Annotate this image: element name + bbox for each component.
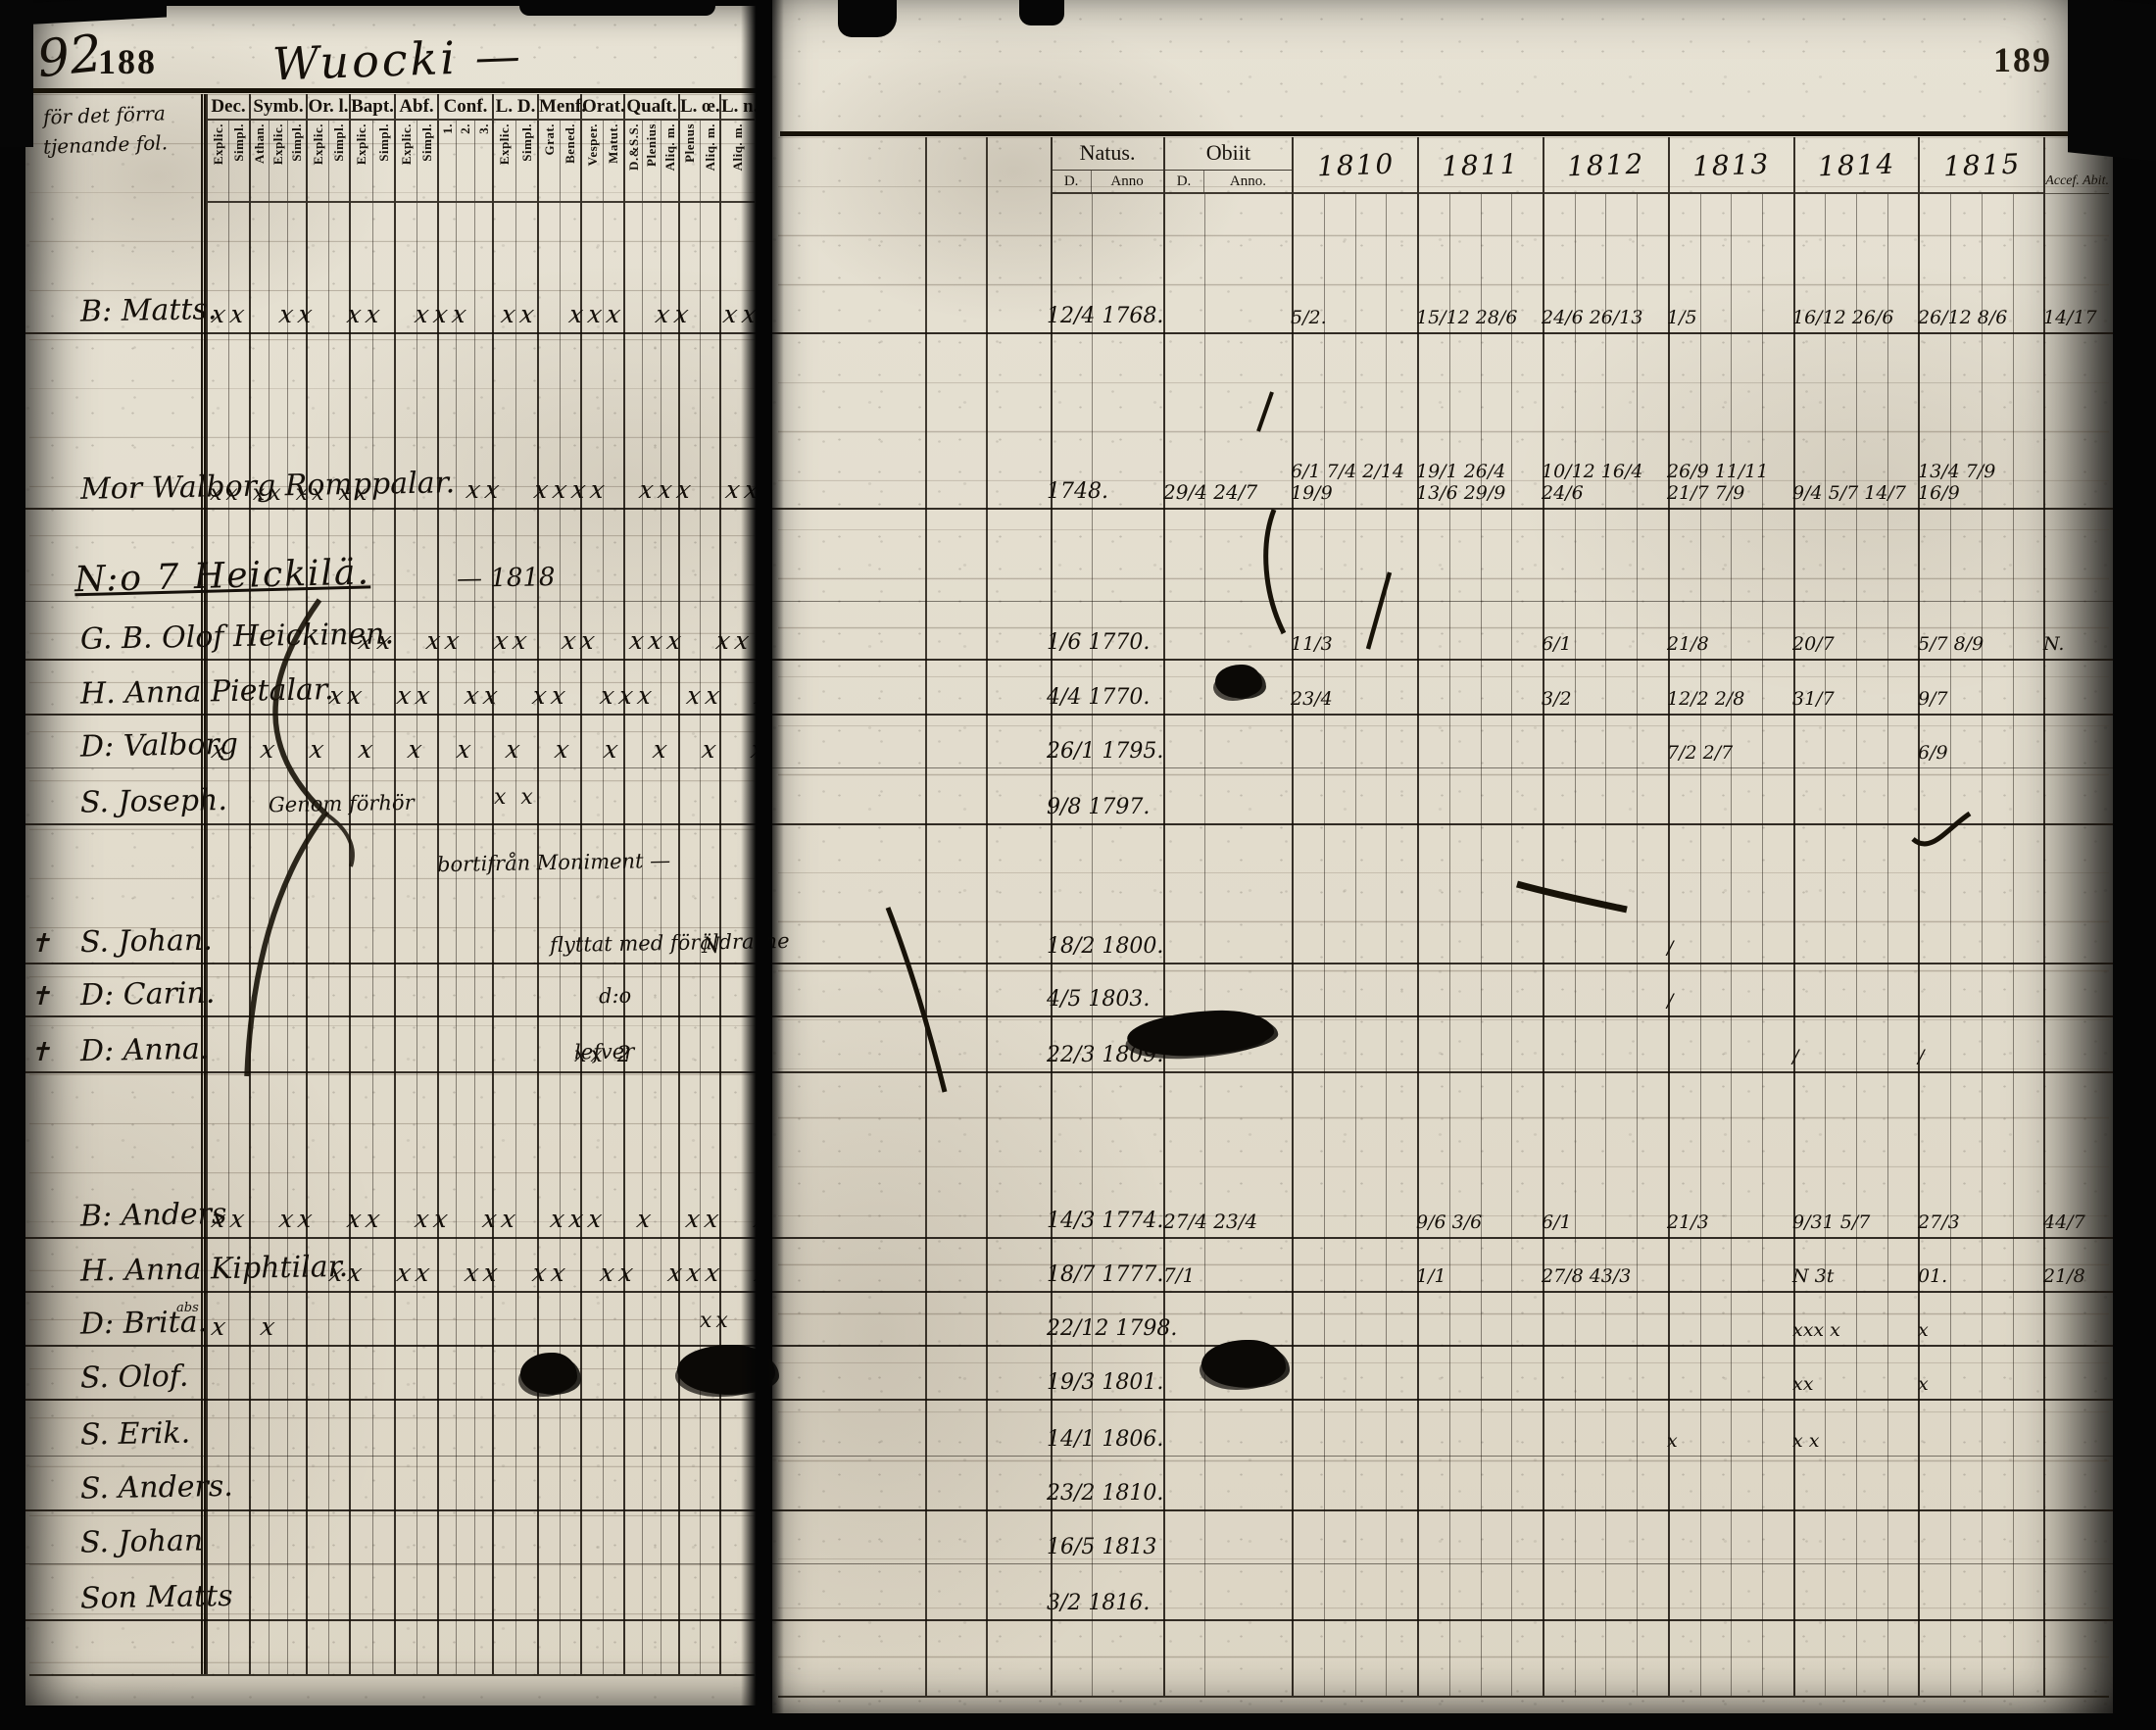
left-rows-layer: B: Matts.xx xx xx xxx xx xxx xx xx xx xx… xyxy=(25,6,759,1705)
year-marks-1810: 23/4 xyxy=(1287,689,1412,710)
natus-value: 4/5 1803. xyxy=(1045,987,1157,1012)
person-row-left: B: Matts.xx xx xx xxx xx xxx xx xx xx xx… xyxy=(25,277,759,334)
person-row-left: S. Anders. xyxy=(25,1460,759,1511)
year-marks-1812: 6/1 xyxy=(1538,1212,1663,1233)
person-row-left: G. B. Olof Heickinen.xx xx xx xx xxx xx … xyxy=(25,606,759,661)
person-row-right: 16/5 1813 xyxy=(772,1515,2113,1564)
obiit-value: 27/4 23/4 xyxy=(1157,1210,1287,1233)
person-row-left: H. Anna Kiphtilar.xx xx xx xx xx xxx xx … xyxy=(25,1242,759,1293)
year-marks-1815: 13/4 7/9 16/9 xyxy=(1914,462,2039,504)
year-marks-1812: 24/6 26/13 xyxy=(1538,308,1663,328)
person-row-right: 9/8 1797. xyxy=(772,772,2113,825)
extra-mark: xx xyxy=(700,1309,732,1333)
year-marks-1815: 6/9 xyxy=(1914,743,2039,764)
cross-mark: ✝ xyxy=(25,929,55,959)
year-marks-1815: 01. xyxy=(1914,1266,2039,1287)
person-row-right: 14/3 1774.27/4 23/49/6 3/66/121/39/31 5/… xyxy=(772,1184,2113,1239)
year-marks-1813: / xyxy=(1663,938,1788,959)
person-row-right: 18/2 1800./ xyxy=(772,910,2113,964)
natus-value: 26/1 1795. xyxy=(1045,739,1157,764)
year-marks-1815: 5/7 8/9 xyxy=(1914,634,2039,655)
communion-marks: x x x x x x x x x x x x x xyxy=(200,735,761,764)
year-marks-1814: 9/4 5/7 14/7 xyxy=(1788,483,1914,504)
section-row-left: N:o 7 Heickilä.— 1818 xyxy=(25,545,759,602)
communion-marks: xx xx xx xx xx xxx x xx xx xyxy=(200,1205,761,1233)
person-name: B: Anders xyxy=(25,1197,203,1234)
year-marks-1813: x xyxy=(1663,1431,1788,1452)
year-marks-1815: x xyxy=(1914,1320,2039,1341)
scan-edge-artifact xyxy=(0,0,33,147)
person-row-left: ✝D: Carin.d:o xyxy=(25,968,759,1017)
cross-mark: ✝ xyxy=(25,1038,55,1067)
obiit-value: 29/4 24/7 xyxy=(1157,480,1287,504)
year-marks-1814: 20/7 xyxy=(1788,634,1914,655)
person-row-right: 1748.29/4 24/76/1 7/4 2/14 19/919/1 26/4… xyxy=(772,439,2113,510)
year-marks-1815: 26/12 8/6 xyxy=(1914,308,2039,328)
accessit-value: 44/7 xyxy=(2039,1211,2113,1233)
year-marks-1814: xx xyxy=(1788,1374,1914,1395)
accessit-value: 14/17 xyxy=(2039,307,2113,328)
person-row-left: D: Brita.x xabsxx xyxy=(25,1296,759,1347)
natus-value: 19/3 1801. xyxy=(1045,1370,1157,1395)
section-heading: N:o 7 Heickilä. xyxy=(25,552,371,601)
person-name: Son Matts xyxy=(25,1579,203,1616)
person-row-right: 22/12 1798.xxx xx xyxy=(772,1296,2113,1347)
year-marks-1813: 21/3 xyxy=(1663,1212,1788,1233)
person-row-left: S. Johan xyxy=(25,1515,759,1564)
scan-edge-artifact xyxy=(519,0,715,16)
year-marks-1812: 27/8 43/3 xyxy=(1538,1266,1663,1287)
natus-value: 4/4 1770. xyxy=(1045,685,1157,710)
person-row-right: 23/2 1810. xyxy=(772,1460,2113,1511)
accessit-value: N. xyxy=(2039,633,2113,655)
person-row-right: 3/2 1816. xyxy=(772,1568,2113,1621)
person-row-right: 22/3 1809.// xyxy=(772,1020,2113,1073)
person-name: G. B. Olof Heickinen. xyxy=(25,618,350,658)
communion-marks: xx xx xx xx xx xxx xx xx xyxy=(318,1259,761,1287)
person-name: H. Anna Kiphtilar. xyxy=(25,1250,320,1289)
year-marks-1813: 1/5 xyxy=(1663,308,1788,328)
person-name: D: Carin. xyxy=(55,975,232,1013)
person-row-left: S. Olof. xyxy=(25,1350,759,1401)
accessit-value: 21/8 xyxy=(2039,1265,2113,1287)
natus-value: 14/1 1806. xyxy=(1045,1427,1157,1452)
year-marks-1814: / xyxy=(1788,1047,1914,1067)
year-marks-1814: 31/7 xyxy=(1788,689,1914,710)
year-marks-1814: 16/12 26/6 xyxy=(1788,308,1914,328)
left-page: 92 188 Wuocki — för det förra tjenande f… xyxy=(25,6,759,1705)
extra-mark: x x xyxy=(494,785,537,810)
person-row-left: H. Anna Pietalar.xx xx xx xx xxx xx xx xyxy=(25,665,759,716)
year-marks-1815: 27/3 xyxy=(1914,1212,2039,1233)
person-row-left: D: Valborgx x x x x x x x x x x x x xyxy=(25,719,759,768)
person-name: S. Johan. xyxy=(55,922,232,960)
natus-value: 22/12 1798. xyxy=(1045,1316,1157,1341)
margin-annotation: bortifrån Moniment — xyxy=(437,849,671,876)
year-marks-1810: 5/2. xyxy=(1287,308,1412,328)
natus-value: 3/2 1816. xyxy=(1045,1591,1157,1615)
natus-value: 18/2 1800. xyxy=(1045,934,1157,959)
cross-mark: ✝ xyxy=(25,982,55,1012)
scanned-parish-register: 92 188 Wuocki — för det förra tjenande f… xyxy=(0,0,2156,1730)
person-row-right: 14/1 1806.xx x xyxy=(772,1404,2113,1457)
year-marks-1815: x xyxy=(1914,1374,2039,1395)
person-name: H. Anna Pietalar. xyxy=(25,672,320,712)
year-marks-1810: 6/1 7/4 2/14 19/9 xyxy=(1287,462,1412,504)
natus-value: 9/8 1797. xyxy=(1045,795,1157,819)
natus-value: 14/3 1774. xyxy=(1045,1209,1157,1233)
year-marks-1815: 9/7 xyxy=(1914,689,2039,710)
communion-marks: x x xyxy=(200,1312,761,1341)
natus-value: 23/2 1810. xyxy=(1045,1481,1157,1506)
year-marks-1812: 3/2 xyxy=(1538,689,1663,710)
communion-marks: xx xxxx xxx xx xx xyxy=(455,475,761,504)
extra-mark: abs xyxy=(176,1301,199,1315)
note-row-left: bortifrån Moniment — xyxy=(25,841,759,882)
person-row-right: 12/4 1768.5/2.15/12 28/624/6 26/131/516/… xyxy=(772,277,2113,334)
person-row-left: ✝S. Johan.flyttat med föräldrarneN xyxy=(25,910,759,964)
year-marks-1812: 6/1 xyxy=(1538,634,1663,655)
person-name: S. Johan xyxy=(25,1523,203,1560)
scan-edge-artifact xyxy=(2068,0,2156,162)
year-marks-1813: 12/2 2/8 xyxy=(1663,689,1788,710)
row-annotation: Genom förhör xyxy=(269,791,415,817)
row-annotation: d:o xyxy=(599,984,632,1009)
section-annotation: — 1818 xyxy=(457,563,556,594)
year-marks-1811: 9/6 3/6 xyxy=(1412,1212,1538,1233)
year-marks-1813: 7/2 2/7 xyxy=(1663,743,1788,764)
person-name: S. Joseph. xyxy=(25,783,203,820)
year-marks-1815: / xyxy=(1914,1047,2039,1067)
year-marks-1811: 1/1 xyxy=(1412,1266,1538,1287)
extra-mark: xx xx xx xx xyxy=(210,481,370,506)
communion-marks: xx xx xx xxx xx xxx xx xx xx xxx xx xx xyxy=(200,300,761,328)
natus-value: 18/7 1777. xyxy=(1045,1262,1157,1287)
person-row-right: 19/3 1801.xxx xyxy=(772,1350,2113,1401)
person-name: S. Anders. xyxy=(25,1469,203,1507)
year-marks-1811: 15/12 28/6 xyxy=(1412,308,1538,328)
person-name: D: Valborg xyxy=(25,727,203,765)
person-name: S. Olof. xyxy=(25,1359,203,1396)
obiit-value: 7/1 xyxy=(1157,1263,1287,1287)
natus-value: 1748. xyxy=(1045,479,1157,504)
year-marks-1814: N 3t xyxy=(1788,1266,1914,1287)
year-marks-1814: x x xyxy=(1788,1431,1914,1452)
year-marks-1814: xxx x xyxy=(1788,1320,1914,1341)
year-marks-1813: 21/8 xyxy=(1663,634,1788,655)
year-marks-1811: 19/1 26/4 13/6 29/9 xyxy=(1412,462,1538,504)
year-marks-1814: 9/31 5/7 xyxy=(1788,1212,1914,1233)
communion-marks: xx xx xx xx xxx xx xx xyxy=(318,681,761,710)
book-spine-shadow xyxy=(741,0,784,1730)
person-row-right: 26/1 1795.7/2 2/76/9 xyxy=(772,719,2113,768)
ink-blot xyxy=(1215,665,1262,698)
person-row-left: Mor Walborg Romppalar.xx xxxx xxx xx xxx… xyxy=(25,439,759,510)
person-row-left: B: Andersxx xx xx xx xx xxx x xx xx xyxy=(25,1184,759,1239)
natus-value: 16/5 1813 xyxy=(1045,1535,1157,1559)
person-row-right: 4/4 1770.23/43/212/2 2/831/79/7 xyxy=(772,665,2113,716)
communion-marks: xx xx xx xx xxx xx x xyxy=(347,626,761,655)
person-row-right: 1/6 1770.11/36/121/820/75/7 8/9N. xyxy=(772,606,2113,661)
person-row-right: 18/7 1777.7/11/127/8 43/3N 3t01.21/8 xyxy=(772,1242,2113,1293)
person-row-left: ✝D: Anna.lefverxx 2 xyxy=(25,1020,759,1073)
person-row-right: 4/5 1803./ xyxy=(772,968,2113,1017)
extra-mark: xx 2 xyxy=(574,1043,635,1067)
person-row-right xyxy=(772,545,2113,602)
natus-value: 12/4 1768. xyxy=(1045,304,1157,328)
year-marks-1813: 26/9 11/11 21/7 7/9 xyxy=(1663,462,1788,504)
scan-edge-artifact xyxy=(838,0,897,37)
year-marks-1810: 11/3 xyxy=(1287,634,1412,655)
right-rows-layer: 12/4 1768.5/2.15/12 28/624/6 26/131/516/… xyxy=(772,0,2113,1713)
person-name: D: Anna. xyxy=(55,1031,232,1068)
year-marks-1812: 10/12 16/4 24/6 xyxy=(1538,462,1663,504)
person-name: B: Matts. xyxy=(25,292,203,329)
person-row-left: Son Matts xyxy=(25,1568,759,1621)
extra-mark: N xyxy=(702,934,724,959)
person-row-left: S. Joseph.Genom förhörx x xyxy=(25,772,759,825)
scan-edge-artifact xyxy=(1019,0,1064,25)
natus-value: 1/6 1770. xyxy=(1045,630,1157,655)
ink-blot xyxy=(520,1353,577,1394)
right-page: 189 Natus.D.AnnoObiitD.Anno.181018111812… xyxy=(772,0,2113,1713)
ink-blot xyxy=(1201,1340,1286,1387)
year-marks-1813: / xyxy=(1663,991,1788,1012)
person-name: S. Erik. xyxy=(25,1415,203,1453)
person-row-left: S. Erik. xyxy=(25,1404,759,1457)
